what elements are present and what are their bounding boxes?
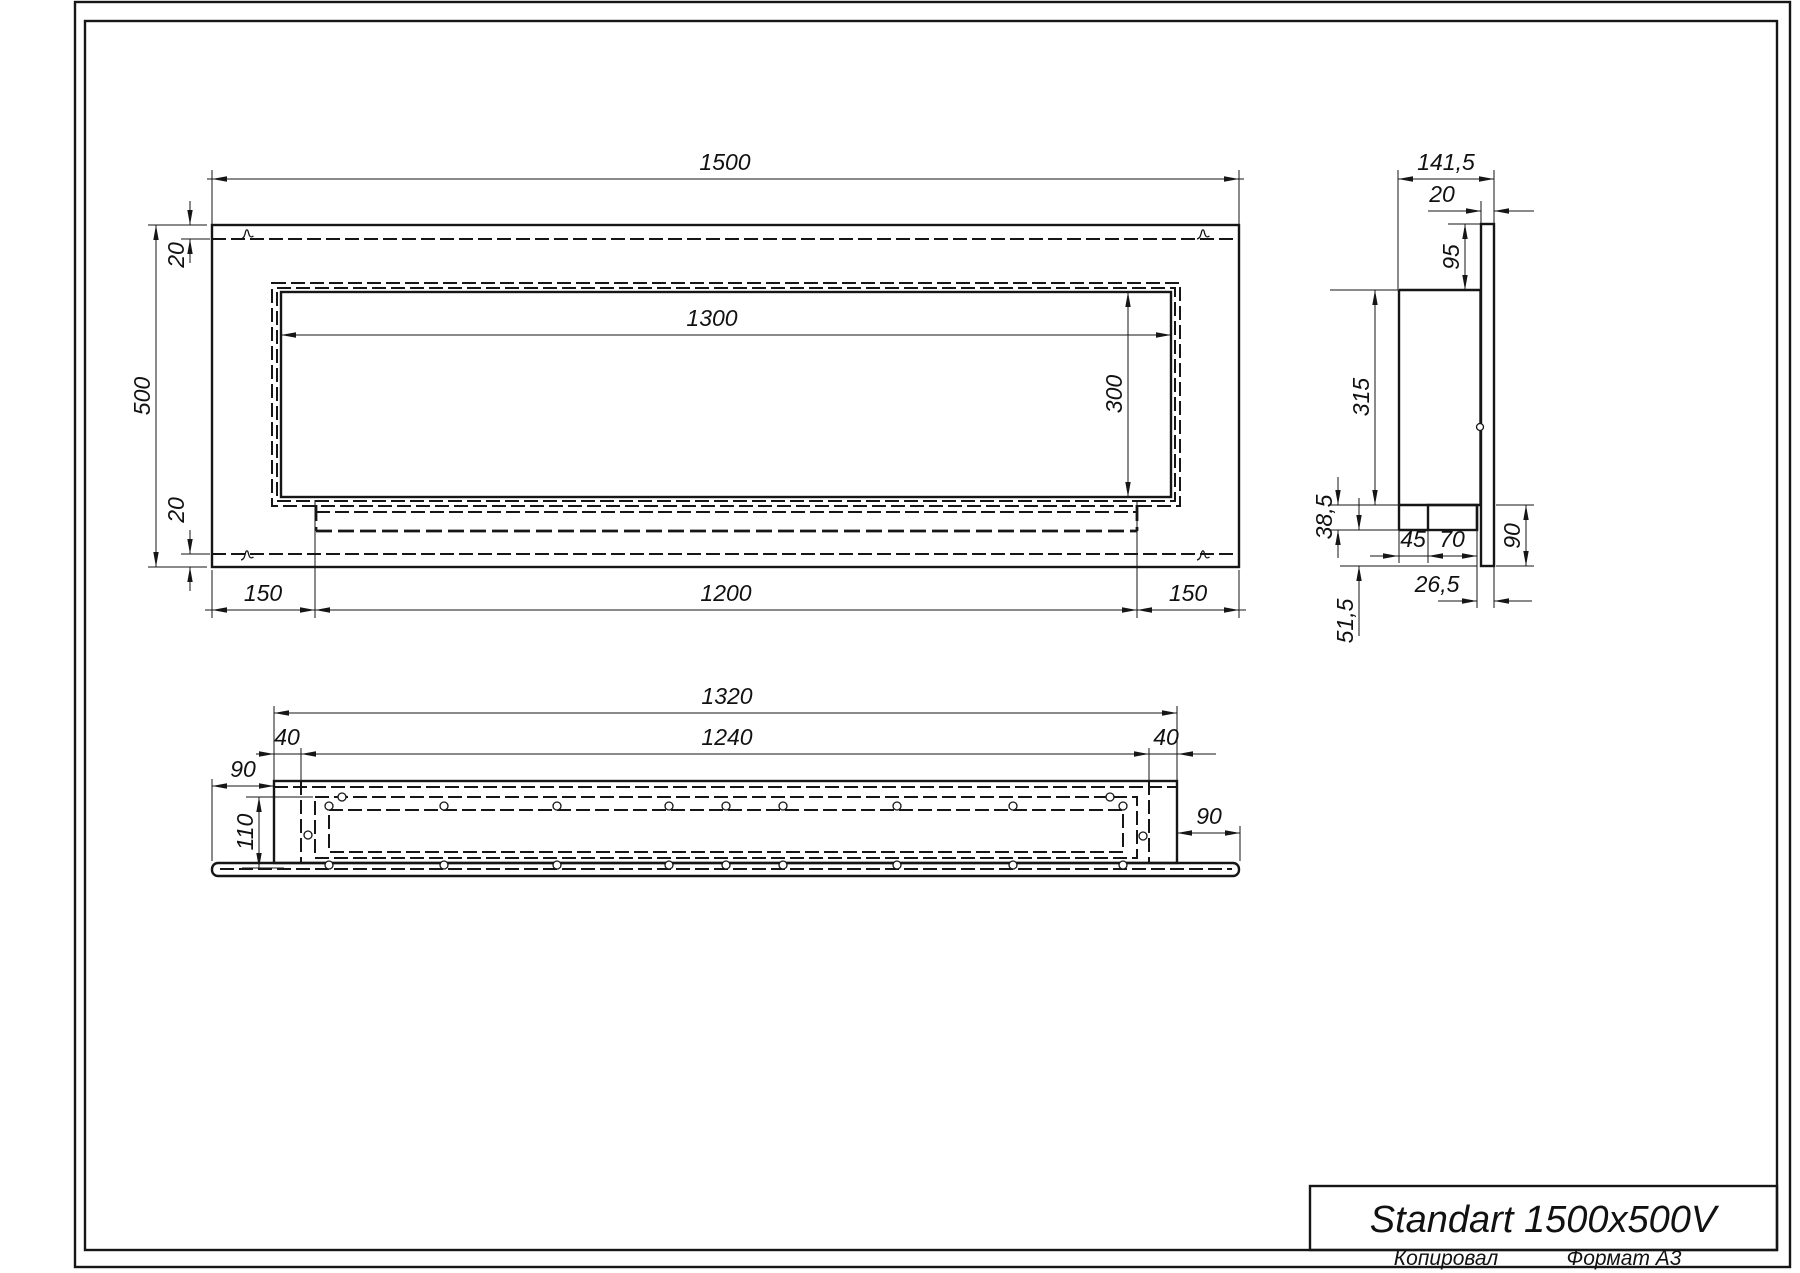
arrowhead (153, 552, 158, 567)
arrowhead (212, 176, 227, 181)
dim-bottom-left-flange: 90 (230, 756, 256, 782)
dim-front-overall-width: 1500 (699, 149, 750, 175)
hole (722, 861, 730, 869)
arrowhead (1356, 515, 1361, 530)
arrowhead (1137, 607, 1152, 612)
arrowhead (1125, 482, 1130, 497)
arrowhead (212, 607, 227, 612)
dim-side-lip-depth: 26,5 (1414, 571, 1460, 597)
dim-side-step-height: 38,5 (1311, 494, 1337, 539)
dim-bottom-opening-width: 1240 (701, 724, 752, 750)
arrowhead (1462, 553, 1477, 558)
cad-drawing: 1500 500 20 20 1300 300 150 1200 150 141… (0, 0, 1800, 1273)
outer-border (75, 2, 1790, 1267)
dim-side-front-plate: 20 (1428, 181, 1455, 207)
arrowhead (1125, 292, 1130, 307)
hole (893, 802, 901, 810)
arrowhead (301, 751, 316, 756)
break-mark (241, 230, 254, 239)
hidden-rect (329, 810, 1123, 852)
holes (304, 424, 1484, 870)
hole (304, 831, 312, 839)
inner-border (85, 21, 1777, 1250)
arrowhead (256, 797, 261, 812)
hole (779, 861, 787, 869)
front-body (212, 225, 1239, 567)
arrowhead (187, 539, 192, 554)
hole (665, 861, 673, 869)
arrowhead (187, 210, 192, 225)
hole (722, 802, 730, 810)
front-view-labels: 1500 500 20 20 1300 300 150 1200 150 (129, 149, 1207, 606)
arrowhead (1178, 751, 1193, 756)
hole (1477, 424, 1484, 431)
hole (325, 802, 333, 810)
hole (893, 861, 901, 869)
dim-front-opening-width: 1300 (686, 305, 737, 331)
hole (325, 861, 333, 869)
arrowhead (1224, 176, 1239, 181)
dim-front-bottom-flange: 20 (163, 497, 189, 524)
dim-front-left-offset: 150 (244, 580, 283, 606)
arrowhead (1356, 566, 1361, 581)
arrowhead (259, 783, 274, 788)
arrowhead (1177, 830, 1192, 835)
hole (1009, 861, 1017, 869)
arrowhead (187, 567, 192, 582)
arrowhead (315, 607, 330, 612)
arrowhead (1383, 553, 1398, 558)
arrowhead (1462, 275, 1467, 290)
arrowhead (1122, 607, 1137, 612)
arrowhead (1466, 208, 1481, 213)
thick-lines (75, 2, 1790, 1267)
dim-side-burner-offset: 45 (1400, 526, 1426, 552)
arrowhead (281, 332, 296, 337)
arrowhead (1225, 830, 1240, 835)
break-mark (1197, 551, 1210, 560)
dim-bottom-depth: 110 (232, 813, 258, 850)
hole (1106, 793, 1114, 801)
arrowhead (153, 225, 158, 240)
arrowhead (274, 710, 289, 715)
break-mark (241, 551, 254, 560)
dim-bottom-body-width: 1320 (701, 683, 752, 709)
dim-side-overall-depth: 141,5 (1417, 149, 1475, 175)
dim-front-right-offset: 150 (1169, 580, 1208, 606)
drawing-sheet: 1500 500 20 20 1300 300 150 1200 150 141… (0, 0, 1800, 1273)
arrowhead (1372, 290, 1377, 305)
dim-side-top-drop: 95 (1438, 244, 1464, 270)
arrowhead (1398, 176, 1413, 181)
bottom-view-labels: 1320 1240 40 40 90 90 110 (230, 683, 1222, 850)
arrowhead (1372, 490, 1377, 505)
hole (338, 793, 346, 801)
arrowhead (1494, 208, 1509, 213)
dim-bottom-left-wall: 40 (274, 724, 300, 750)
side-front-plate (1481, 224, 1494, 566)
dim-side-lip-height: 51,5 (1332, 598, 1358, 643)
hole (1139, 832, 1147, 840)
dim-side-body-height: 315 (1348, 378, 1374, 417)
arrowhead (1134, 751, 1149, 756)
footer-copied-by: Копировал (1394, 1247, 1499, 1270)
dim-front-overall-height: 500 (129, 377, 155, 416)
hidden-lines (212, 239, 1239, 869)
drawing-title: Standart 1500x500V (1370, 1199, 1720, 1241)
arrowhead (1156, 332, 1171, 337)
linework (75, 2, 1790, 1267)
footer-format: Формат А3 (1567, 1247, 1682, 1270)
arrowhead (1462, 598, 1477, 603)
hole (779, 802, 787, 810)
arrowhead (256, 853, 261, 868)
arrowhead (212, 783, 227, 788)
hole (1119, 802, 1127, 810)
dim-side-lower-plate-height: 90 (1499, 523, 1525, 549)
arrowhead (1224, 607, 1239, 612)
dim-side-burner-width: 70 (1439, 526, 1465, 552)
hole (1119, 861, 1127, 869)
arrowhead (1428, 553, 1443, 558)
break-mark (1197, 230, 1210, 239)
arrowhead (259, 751, 274, 756)
dim-bottom-right-flange: 90 (1196, 803, 1222, 829)
hidden-lines-heavy (316, 505, 1137, 531)
dim-front-inner-box-width: 1200 (700, 580, 751, 606)
arrowhead (1523, 551, 1528, 566)
dim-front-top-flange: 20 (163, 242, 189, 269)
hole (553, 802, 561, 810)
bottom-body (274, 781, 1177, 863)
hole (665, 802, 673, 810)
hole (440, 861, 448, 869)
dim-bottom-right-wall: 40 (1153, 724, 1179, 750)
arrowhead (1494, 598, 1509, 603)
hole (1009, 802, 1017, 810)
arrowhead (1479, 176, 1494, 181)
break-marks (241, 230, 1210, 560)
arrowhead (300, 607, 315, 612)
dim-front-opening-height: 300 (1101, 375, 1127, 414)
arrowhead (1523, 505, 1528, 520)
title-block: Standart 1500x500V Копировал Формат А3 (1370, 1199, 1720, 1270)
arrowhead (1462, 224, 1467, 239)
hole (553, 861, 561, 869)
arrowhead (1162, 710, 1177, 715)
hole (440, 802, 448, 810)
